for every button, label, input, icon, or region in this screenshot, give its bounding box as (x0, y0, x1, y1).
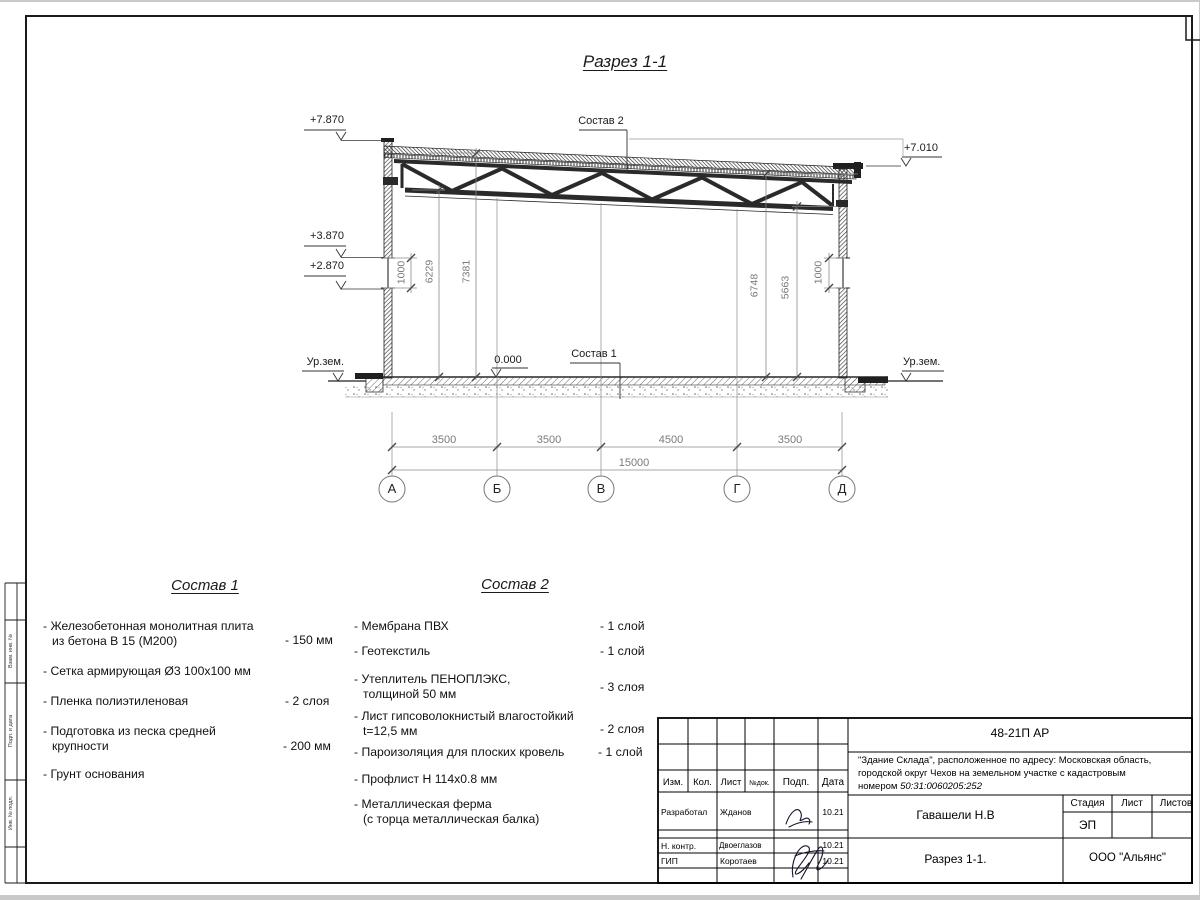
dim-6748: 6748 (749, 266, 762, 306)
row-role: Н. контр. (661, 841, 716, 851)
stage-value: ЭП (1063, 818, 1112, 832)
col-header-ndok: №док. (745, 780, 774, 787)
sostav1-ref-label: Состав 1 (567, 348, 621, 360)
sostav2-item-value: - 1 слой (598, 745, 650, 759)
ground-level-left-label: Ур.зем. (296, 356, 344, 368)
titleblock-project: "Здание Склада", расположенное по адресу… (858, 755, 1188, 793)
sostav1-item: - Сетка армирующая Ø3 100х100 мм (43, 664, 292, 679)
sostav2-item: - Геотекстиль (354, 644, 613, 659)
sostav2-item: - Утеплитель ПЕНОПЛЭКС, толщиной 50 мм (354, 672, 543, 702)
dim-span-gd: 3500 (765, 434, 815, 446)
roof-layers (384, 146, 856, 184)
sheets-header: Листов (1152, 798, 1200, 809)
col-header-kol: Кол. (688, 777, 717, 788)
frame-side-label: Инв. № подл. (6, 783, 16, 843)
row-role: Разработал (661, 807, 716, 817)
sostav2-item: - Профлист Н 114х0.8 мм (354, 772, 613, 787)
col-header-list: Лист (717, 777, 745, 788)
axis-bubble-v: В (588, 476, 614, 502)
sostav2-item: - Металлическая ферма (с торца металличе… (354, 797, 548, 827)
sostav1-title: Состав 1 (150, 577, 260, 594)
building-section (328, 138, 943, 397)
sostav1-item: - Пленка полиэтиленовая (43, 694, 292, 709)
cadastral-number: 50:31:0060205:252 (900, 781, 982, 792)
row-name: Двоеглазов (719, 841, 774, 850)
sostav1-item-value: - 2 слоя (285, 694, 340, 708)
drawing-sheet: Разрез 1-1 +7.870 +7.010 +3.870 +2.870 У… (0, 0, 1200, 900)
row-date: 10.21 (818, 807, 848, 817)
sostav1-item-value: - 200 мм (283, 739, 338, 753)
dim-span-ab: 3500 (419, 434, 469, 446)
sostav1-item: - Грунт основания (43, 767, 292, 782)
sostav2-item-value: - 1 слой (600, 619, 652, 633)
right-wall (833, 162, 863, 378)
stage-header: Стадия (1063, 798, 1112, 809)
axis-bubble-b: Б (484, 476, 510, 502)
titleblock-chief: Гавашели Н.В (848, 808, 1063, 822)
dim-span-vg: 4500 (644, 434, 698, 446)
sostav1-item: - Железобетонная монолитная плита из бет… (43, 619, 286, 649)
sostav2-item: - Мембрана ПВХ (354, 619, 613, 634)
axis-bubble-d: Д (829, 476, 855, 502)
axis-bubbles (379, 476, 855, 502)
elevation-parapet: +7.870 (298, 114, 344, 126)
axis-bubble-a: А (379, 476, 405, 502)
row-date: 10.21 (818, 840, 848, 850)
row-name: Коротаев (720, 856, 773, 866)
sostav2-item: - Пароизоляция для плоских кровель (354, 745, 613, 760)
col-header-podp: Подп. (774, 777, 818, 788)
sostav1-item-value: - 150 мм (285, 633, 340, 647)
sostav2-item: - Лист гипсоволокнистый влагостойкий t=1… (354, 709, 608, 739)
dim-window-left: 1000 (396, 253, 409, 293)
dim-window-right: 1000 (813, 253, 826, 293)
row-name: Жданов (720, 807, 773, 817)
frame-side-label: Подп. и дата (6, 701, 16, 761)
sostav2-item-value: - 2 слоя (600, 722, 652, 736)
sostav2-item-value: - 3 слоя (600, 680, 652, 694)
sostav2-title: Состав 2 (460, 576, 570, 593)
dim-7381: 7381 (461, 252, 474, 292)
ground-level-right-label: Ур.зем. (903, 356, 951, 368)
dim-5663: 5663 (780, 268, 793, 308)
sheet-title: Разрез 1-1 (545, 52, 705, 72)
titleblock-company: ООО "Альянс" (1063, 852, 1192, 864)
titleblock-drawing-name: Разрез 1-1. (848, 852, 1063, 866)
floor-slab (328, 373, 943, 397)
elevation-window-top: +3.870 (298, 230, 344, 242)
dim-span-bv: 3500 (524, 434, 574, 446)
sostav2-item-value: - 1 слой (600, 644, 652, 658)
col-header-izm: Изм. (658, 777, 688, 788)
sostav2-ref-label: Состав 2 (575, 115, 627, 127)
row-date: 10.21 (818, 856, 848, 866)
zero-level-label: 0.000 (488, 354, 528, 366)
titleblock-doc-code: 48-21П АР (848, 726, 1192, 740)
elevation-roof-right: +7.010 (904, 142, 950, 154)
dim-6229: 6229 (424, 252, 437, 292)
sheet-header: Лист (1112, 798, 1152, 809)
frame-side-label: Взам. инв. № (6, 621, 16, 681)
row-role: ГИП (661, 856, 716, 866)
elevation-window-bottom: +2.870 (298, 260, 344, 272)
dim-total: 15000 (604, 457, 664, 469)
col-header-data: Дата (818, 777, 848, 788)
axis-bubble-g: Г (724, 476, 750, 502)
sostav1-item: - Подготовка из песка средней крупности (43, 724, 247, 754)
